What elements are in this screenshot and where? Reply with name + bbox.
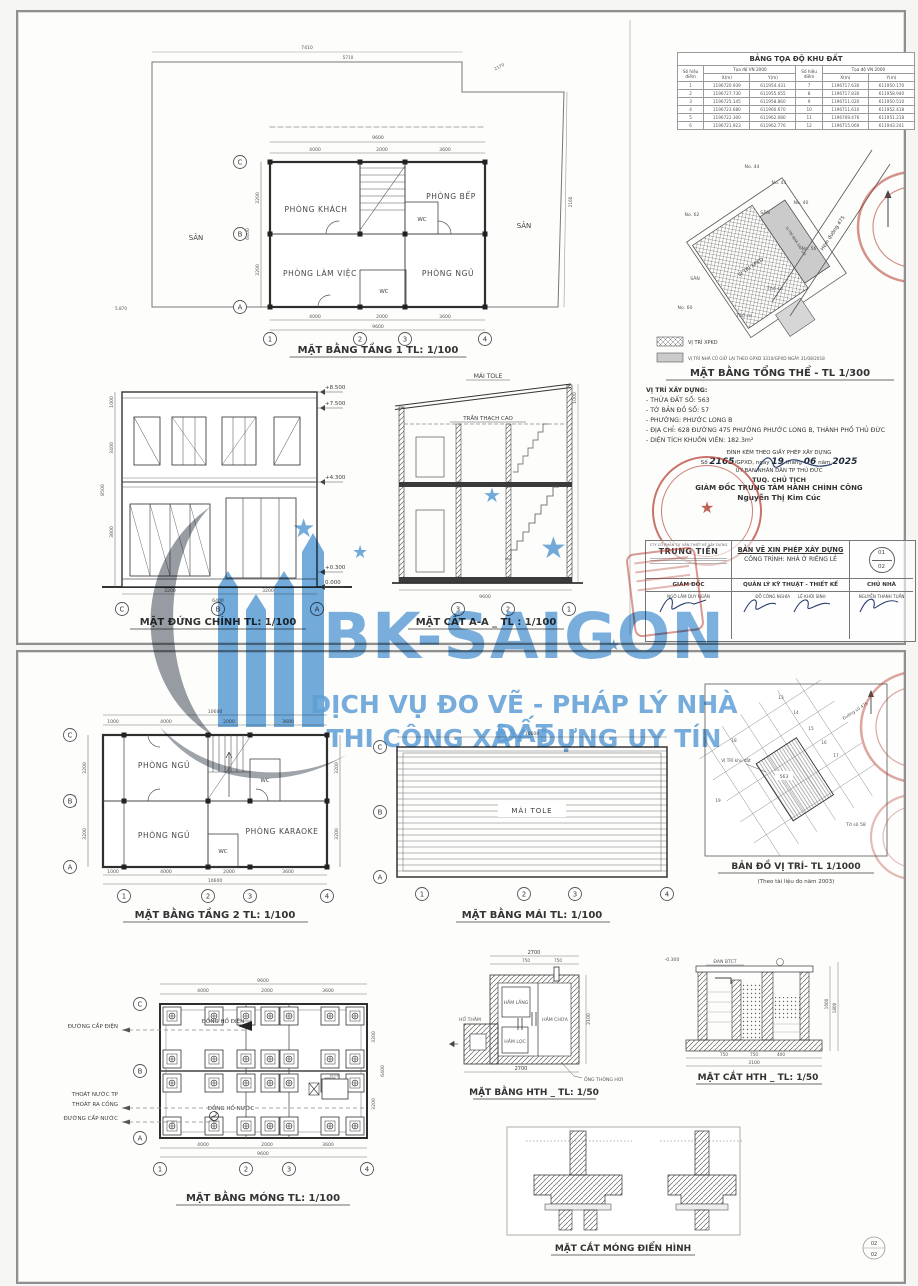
drawing-title: MẶT BẰNG HTH _ TL: 1/50 xyxy=(469,1085,599,1098)
company-stamp-icon xyxy=(625,546,705,638)
sig-cell: NGUYỄN THANH TUẤN xyxy=(850,592,913,639)
table-row: 61196721.923611962.776121196715.06961194… xyxy=(678,122,915,130)
dim: 3200 xyxy=(334,828,340,840)
roof-label: MÁI TOLE xyxy=(511,806,552,815)
dim: 3100 xyxy=(748,1060,760,1066)
map-lot: 13 xyxy=(778,695,784,700)
annotation: ĐƯỜNG CẤP NƯỚC xyxy=(64,1114,119,1122)
dim: 2000 xyxy=(223,719,235,725)
dim: 3200 xyxy=(371,1098,377,1110)
roof-label: MÁI TOLE xyxy=(474,373,503,380)
grid-label: A xyxy=(68,864,73,872)
drawing-title: BẢN ĐỒ VỊ TRÍ- TL 1/1000 xyxy=(731,859,860,872)
dim: 3200 xyxy=(82,762,88,774)
col-header: X(m) xyxy=(704,74,750,82)
location-item: - THỬA ĐẤT SỐ: 563 xyxy=(646,396,912,406)
grid-label: 3 xyxy=(287,1166,291,1174)
level: -0.300 xyxy=(665,957,680,963)
dim: 3600 xyxy=(322,988,334,994)
signature-icon xyxy=(850,592,908,618)
dim: 10600 xyxy=(208,709,223,715)
grid-label: A xyxy=(315,606,320,614)
room-label: PHÒNG NGỦ xyxy=(138,830,190,840)
dim: 4000 xyxy=(160,719,172,725)
site-parcels: VỊ TRÍ XPKD VỊ TRÍ NHÀ GIỮ LẠI xyxy=(687,178,858,355)
level: +0.300 xyxy=(325,565,346,571)
table-row: 21196727.730611955.65581196717.830611958… xyxy=(678,90,915,98)
map-sheet: Tờ số 58 xyxy=(845,821,866,828)
map-subtitle: (Theo tài liệu đo năm 2003) xyxy=(758,878,835,885)
yard-label: SÂN xyxy=(760,209,770,216)
dim: 4000 xyxy=(309,314,321,320)
typical-footing: MẶT CẮT MÓNG ĐIỂN HÌNH xyxy=(507,1127,744,1255)
map-lot: 14 xyxy=(793,710,799,715)
table-row: 31196725.145611958.86091196711.020611950… xyxy=(678,98,915,106)
map-lot: 16 xyxy=(821,740,827,745)
location-heading: VỊ TRÍ XÂY DỰNG: xyxy=(646,386,912,396)
lot-label: No. 62 xyxy=(685,212,700,218)
map-lot: 17 xyxy=(833,753,839,758)
blueprint-page: 7410 5710 2170 2160 5.870 xyxy=(0,0,918,1286)
doc-subtitle: CÔNG TRÌNH: NHÀ Ở RIÊNG LẺ xyxy=(732,556,849,563)
yard-label: SÂN xyxy=(189,233,204,242)
hth-label: HTH xyxy=(330,1073,340,1079)
drawing-title: MẶT BẰNG TẦNG 1 TL: 1/100 xyxy=(298,341,459,356)
yard-label: SÂN xyxy=(690,275,700,282)
dim: 9600 xyxy=(257,1151,269,1157)
landuse-label: Thổ cư xyxy=(735,312,753,319)
dim: 2700 xyxy=(515,1066,528,1072)
dim: 9600 xyxy=(257,978,269,984)
table-row: 11196720.939611954.43171196717.630611950… xyxy=(678,82,915,90)
dim: 3200 xyxy=(262,588,274,594)
section-a-a: MÁI TOLE TRẦN THẠCH CAO 1000 xyxy=(392,373,583,629)
drawing-title: MẶT BẰNG TẦNG 2 TL: 1/100 xyxy=(135,906,296,921)
annotation: ĐƯỜNG CẤP ĐIỆN xyxy=(68,1022,118,1030)
dim: 1000 xyxy=(107,869,119,875)
dim: 9600 xyxy=(372,324,384,330)
dim: 1000 xyxy=(572,392,578,404)
sheet-number-cell: 01 02 xyxy=(850,541,913,579)
dim: 3600 xyxy=(439,147,451,153)
grid-label: A xyxy=(378,874,383,882)
grid-label: 3 xyxy=(403,336,407,344)
septic-section: ĐAN BTCT -0.300 750 750 400 3100 xyxy=(665,957,838,1084)
site-dim: 2170 xyxy=(493,62,505,72)
col-header: X(m) xyxy=(822,74,868,82)
drawing-title: MẶT CẮT A-A _ TL : 1/100 xyxy=(416,613,557,628)
room-label: PHÒNG LÀM VIỆC xyxy=(283,269,357,278)
grid-label: C xyxy=(120,606,125,614)
grid-label: 1 xyxy=(122,893,126,901)
dim: 1000 xyxy=(109,396,115,408)
dim: 3200 xyxy=(255,264,261,276)
drawing-title: MẶT CẮT MÓNG ĐIỂN HÌNH xyxy=(555,1241,691,1254)
site-dim: 5710 xyxy=(343,55,354,60)
dim: 9600 xyxy=(372,135,384,141)
col-header: Số hiệu điểm xyxy=(796,66,822,82)
grid-label: B xyxy=(138,1068,143,1076)
dim: 3600 xyxy=(322,1142,334,1148)
dim: 3200 xyxy=(82,828,88,840)
drawing-title: MẶT BẰNG TỔNG THỂ - TL 1/300 xyxy=(690,364,870,379)
map-parcel: 563 xyxy=(780,774,789,780)
role-design: QUẢN LÝ KỸ THUẬT - THIẾT KẾ xyxy=(732,579,850,592)
legend-label: VỊ TRÍ XPKD xyxy=(688,339,718,346)
lot-label: No. 40 xyxy=(794,200,809,206)
drawing-title: MẶT BẰNG MÓNG TL: 1/100 xyxy=(186,1189,340,1204)
signature-icon xyxy=(732,592,842,618)
dim: 10600 xyxy=(208,878,223,884)
stair-upper xyxy=(513,424,548,472)
dim: 1000 xyxy=(107,719,119,725)
dim: 4000 xyxy=(197,988,209,994)
map-label: VỊ TRÍ khu đất xyxy=(721,758,751,763)
drawing-title: MẶT ĐỨNG CHÍNH TL: 1/100 xyxy=(140,614,297,628)
grid-label: 2 xyxy=(244,1166,248,1174)
table-row: 41196723.680611960.670101196711.61061195… xyxy=(678,106,915,114)
grid-label: 4 xyxy=(365,1166,370,1174)
annotation: THOÁT RA CỐNG xyxy=(71,1100,118,1108)
dim: 2700 xyxy=(528,950,541,956)
grid-label: C xyxy=(68,732,73,740)
grid-bubbles: 3 2 1 xyxy=(452,603,576,616)
dim: 1600 xyxy=(824,998,829,1009)
location-item: - ĐỊA CHỈ: 628 ĐƯỜNG 475 PHƯỜNG PHƯỚC LO… xyxy=(646,426,912,436)
doc-title-cell: BẢN VẼ XIN PHÉP XÂY DỰNG CÔNG TRÌNH: NHÀ… xyxy=(732,541,850,579)
drawing-title: MẶT CẮT HTH _ TL: 1/50 xyxy=(698,1070,819,1083)
dim: 3600 xyxy=(282,719,294,725)
dim: 1800 xyxy=(832,1002,837,1013)
dim: 750 xyxy=(720,1052,728,1057)
grid-label: B xyxy=(378,809,383,817)
dim: 3600 xyxy=(282,869,294,875)
roof-plan: MÁI TOLE 10600 1 2 3 4 C B A MẶT BẰNG MÁ… xyxy=(374,731,674,922)
level: +7.500 xyxy=(325,401,346,407)
col-header: Y(m) xyxy=(868,74,914,82)
site-dim: 7410 xyxy=(301,45,313,51)
table-row: 51196722.300611962.080111196709.47661195… xyxy=(678,114,915,122)
map-lot: 15 xyxy=(808,726,814,731)
dim: 9600 xyxy=(479,594,491,600)
grid-label: 2 xyxy=(506,606,510,614)
dim: 3600 xyxy=(439,314,451,320)
room-label: WC xyxy=(379,289,388,295)
front-elevation: +8.500 +7.500 +4.300 +0.300 0.000 1000 3… xyxy=(100,385,352,629)
dim: 3200 xyxy=(255,192,261,204)
dim: 8500 xyxy=(100,484,106,496)
sheet2-drawing: PHÒNG NGỦ WC PHÒNG NGỦ PHÒNG KARAOKE WC … xyxy=(18,652,904,1282)
lot-label: No. 60 xyxy=(678,305,693,311)
grid-label: 2 xyxy=(522,891,526,899)
sheet-no: 01 xyxy=(870,550,894,556)
dim: 750 xyxy=(522,958,530,963)
room-label: WC xyxy=(260,778,269,784)
sig-cell: ĐỖ CÔNG NGHĨA LÊ KHÔI SINH xyxy=(732,592,850,639)
floor-plan-2: PHÒNG NGỦ WC PHÒNG NGỦ PHÒNG KARAOKE WC … xyxy=(64,709,341,922)
dim: 4000 xyxy=(197,1142,209,1148)
col-header: Y(m) xyxy=(750,74,796,82)
room-label: PHÒNG KARAOKE xyxy=(245,827,318,836)
room-label: WC xyxy=(417,217,426,223)
dim: 2000 xyxy=(223,869,235,875)
legend-label: VỊ TRÍ NHÀ CŨ GIỮ LẠI THEO GPXD 3310/GPX… xyxy=(688,356,825,361)
room-label: PHÒNG BẾP xyxy=(426,191,476,201)
lot-label: No. 56 xyxy=(802,246,817,252)
dim: 2000 xyxy=(261,1142,273,1148)
location-map: 13 14 15 16 17 18 19 563 VỊ TRÍ khu đất … xyxy=(691,667,889,885)
yard-label: SÂN xyxy=(517,221,532,230)
partial-stamp-icon xyxy=(858,172,904,282)
dim: 2000 xyxy=(261,988,273,994)
grid-label: 1 xyxy=(567,606,571,614)
map-lot: 18 xyxy=(731,738,737,743)
doc-title: BẢN VẼ XIN PHÉP XÂY DỰNG xyxy=(732,546,849,554)
grid-label: 1 xyxy=(420,891,424,899)
dim: 3200 xyxy=(371,1031,377,1043)
grid-label: 4 xyxy=(325,893,330,901)
dim: 400 xyxy=(777,1052,785,1057)
dim: 3200 xyxy=(164,588,176,594)
location-item: - PHƯỜNG: PHƯỚC LONG B xyxy=(646,416,912,426)
sheet-badge: 02 02 xyxy=(863,1237,885,1259)
grid-label: 3 xyxy=(248,893,252,901)
dim: 750 xyxy=(554,958,562,963)
dim: 2000 xyxy=(376,314,388,320)
floor-plan-1: 7410 5710 2170 2160 5.870 xyxy=(115,45,573,357)
sheet-1: 7410 5710 2170 2160 5.870 xyxy=(16,10,906,645)
grid-bubbles: C B A xyxy=(116,603,324,616)
annotation: THOÁT NƯỚC TP xyxy=(71,1091,119,1098)
room-label: PHÒNG NGỦ xyxy=(422,268,474,278)
dim: 750 xyxy=(750,1052,758,1057)
level: +4.300 xyxy=(325,475,346,481)
foundation-plan: HTH ĐỒNG HỒ ĐIỆN ĐỒNG HỒ NƯỚC ĐƯỜNG CẤP … xyxy=(64,978,387,1205)
road-label: Hẻm đường 475 xyxy=(819,214,847,252)
col-header: Tọa độ VN 2000 xyxy=(704,66,796,74)
dim: 10600 xyxy=(525,731,540,737)
level: 0.000 xyxy=(325,580,341,586)
grid-label: 1 xyxy=(268,336,272,344)
level-markers: +8.500 +7.500 +4.300 +0.300 0.000 xyxy=(317,385,346,590)
dim: 6400 xyxy=(380,1065,386,1077)
site-plan: VỊ TRÍ XPKD VỊ TRÍ NHÀ GIỮ LẠI Hẻm đường… xyxy=(657,150,894,380)
col-header: Tọa độ VN 2000 xyxy=(822,66,914,74)
grid-label: 2 xyxy=(358,336,362,344)
grid-label: C xyxy=(138,1001,143,1009)
grid-label: B xyxy=(238,231,243,239)
section-columns xyxy=(456,424,511,577)
location-item: - DIỆN TÍCH KHUÔN VIÊN: 182.3m² xyxy=(646,436,912,446)
grid-label: C xyxy=(378,744,383,752)
grid-label: B xyxy=(216,606,221,614)
landuse-label: Thổ cư xyxy=(766,285,784,292)
grid-label: 1 xyxy=(158,1166,162,1174)
dim: 4000 xyxy=(160,869,172,875)
chamber-label: HỐ THĂM xyxy=(459,1015,481,1023)
level: +8.500 xyxy=(325,385,346,391)
dim: 3200 xyxy=(334,762,340,774)
stair-lower xyxy=(505,487,559,559)
site-dim: 5.870 xyxy=(115,306,127,311)
slab-label: ĐAN BTCT xyxy=(713,959,736,965)
grid-label: C xyxy=(238,159,243,167)
sheet-total: 02 xyxy=(871,1252,877,1258)
location-item: - TỜ BẢN ĐỒ SỐ: 57 xyxy=(646,406,912,416)
ceiling-label: TRẦN THẠCH CAO xyxy=(462,414,513,422)
col-header: Số hiệu điểm xyxy=(678,66,704,82)
grid-label: 4 xyxy=(665,891,670,899)
location-info: VỊ TRÍ XÂY DỰNG: - THỬA ĐẤT SỐ: 563 - TỜ… xyxy=(646,386,912,446)
dim: 2100 xyxy=(586,1013,592,1025)
drawing-title: MẶT BẰNG MÁI TL: 1/100 xyxy=(462,906,603,921)
map-lot: 19 xyxy=(715,798,721,803)
sheet-2: PHÒNG NGỦ WC PHÒNG NGỦ PHÒNG KARAOKE WC … xyxy=(16,650,906,1284)
dim: 4000 xyxy=(309,147,321,153)
sheet-no: 02 xyxy=(871,1241,877,1247)
dim: 2000 xyxy=(376,147,388,153)
lot-label: No. 44 xyxy=(745,164,760,170)
room-label: WC xyxy=(218,849,227,855)
room-label: PHÒNG NGỦ xyxy=(138,760,190,770)
table-title: BẢNG TỌA ĐỘ KHU ĐẤT xyxy=(678,53,915,66)
site-dim: 2160 xyxy=(568,196,573,207)
vent-label: ỐNG THÔNG HƠI xyxy=(584,1075,623,1083)
grid-label: 3 xyxy=(573,891,577,899)
grid-label: A xyxy=(138,1135,143,1143)
grid-label: A xyxy=(238,304,243,312)
lot-label: No. 45 xyxy=(772,180,787,186)
dim: 3800 xyxy=(109,526,115,538)
room-label: PHÒNG KHÁCH xyxy=(285,205,348,214)
septic-plan: HẦM LẮNG HẦM CHỨA HẦM LỌC HỐ THĂM ỐNG TH… xyxy=(450,950,623,1099)
grid-label: 2 xyxy=(206,893,210,901)
coordinate-table: BẢNG TỌA ĐỘ KHU ĐẤT Số hiệu điểm Tọa độ … xyxy=(677,52,915,130)
sheet-total: 02 xyxy=(870,564,894,570)
grid-label: 4 xyxy=(483,336,488,344)
grid-label: B xyxy=(68,798,73,806)
legend: VỊ TRÍ XPKD VỊ TRÍ NHÀ CŨ GIỮ LẠI THEO G… xyxy=(657,337,825,362)
dim: 3400 xyxy=(109,442,115,454)
sheet-badge: 01 02 xyxy=(869,547,895,573)
role-owner: CHỦ NHÀ xyxy=(850,579,913,592)
grid-label: 3 xyxy=(456,606,460,614)
